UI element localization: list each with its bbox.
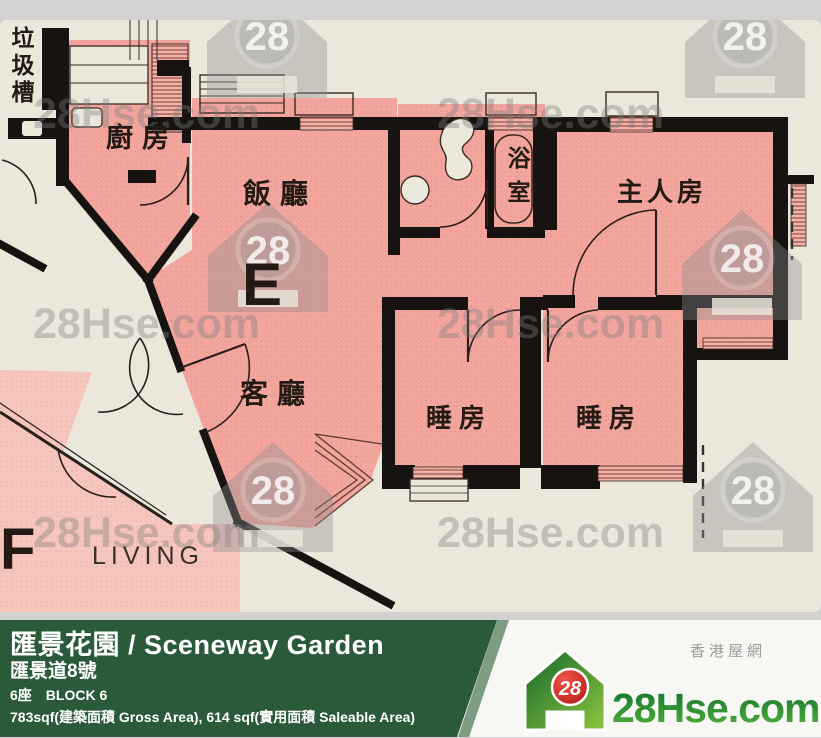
- watermark-badge: 28: [720, 237, 765, 281]
- unit-label-e: E: [242, 250, 282, 319]
- info-bar: 匯景花園 / Sceneway Garden 匯景道8號 6座BLOCK 6 7…: [0, 620, 821, 737]
- watermark-text: 28Hse.com: [437, 300, 664, 348]
- brand-house-icon: 28: [525, 650, 605, 730]
- room-label-bathroom: 浴室: [500, 146, 534, 214]
- room-label-dining: 飯廳: [243, 172, 317, 212]
- sink-icon: [401, 176, 429, 204]
- room-label-kitchen: 廚房: [106, 116, 178, 155]
- room-label-living: 客廳: [240, 372, 314, 412]
- estate-block-zh: 6座: [10, 687, 32, 703]
- watermark-badge: 28: [731, 469, 776, 513]
- room-label-bedroom-2: 睡房: [576, 398, 642, 435]
- brand-logo-graphic: 28 28Hse.com: [520, 628, 820, 733]
- room-label-master-bedroom: 主人房: [617, 172, 707, 209]
- brand-tagline: 香港屋網: [690, 640, 766, 661]
- watermark-badge: 28: [251, 469, 296, 513]
- listing-image: 28 28 28 28 28 28 28Hse.com 28Hse.com 28…: [0, 0, 821, 737]
- unit-label-f: F: [0, 516, 35, 583]
- estate-area: 783sqf(建築面積 Gross Area), 614 sqf(實用面積 Sa…: [10, 707, 415, 727]
- watermark-badge: 28: [723, 20, 768, 59]
- brand-badge-number: 28: [558, 678, 582, 700]
- room-label-trash-chute: 垃圾槽: [4, 26, 38, 107]
- floor-plan-drawing: 28 28 28 28 28 28 28Hse.com 28Hse.com 28…: [0, 20, 821, 612]
- room-label-living-en: LIVING: [92, 542, 204, 571]
- watermark-badge: 28: [245, 20, 290, 59]
- estate-address: 匯景道8號: [10, 656, 97, 683]
- brand-logo: 28 28Hse.com 香港屋網: [520, 628, 820, 733]
- watermark-text: 28Hse.com: [437, 90, 664, 138]
- estate-block-en: BLOCK 6: [46, 687, 107, 703]
- watermark-text: 28Hse.com: [437, 509, 664, 557]
- watermark-text: 28Hse.com: [33, 300, 260, 348]
- floor-plan: 28 28 28 28 28 28 28Hse.com 28Hse.com 28…: [0, 20, 821, 612]
- estate-block: 6座BLOCK 6: [10, 685, 121, 705]
- room-label-bedroom-1: 睡房: [426, 398, 492, 435]
- brand-name: 28Hse.com: [612, 685, 820, 731]
